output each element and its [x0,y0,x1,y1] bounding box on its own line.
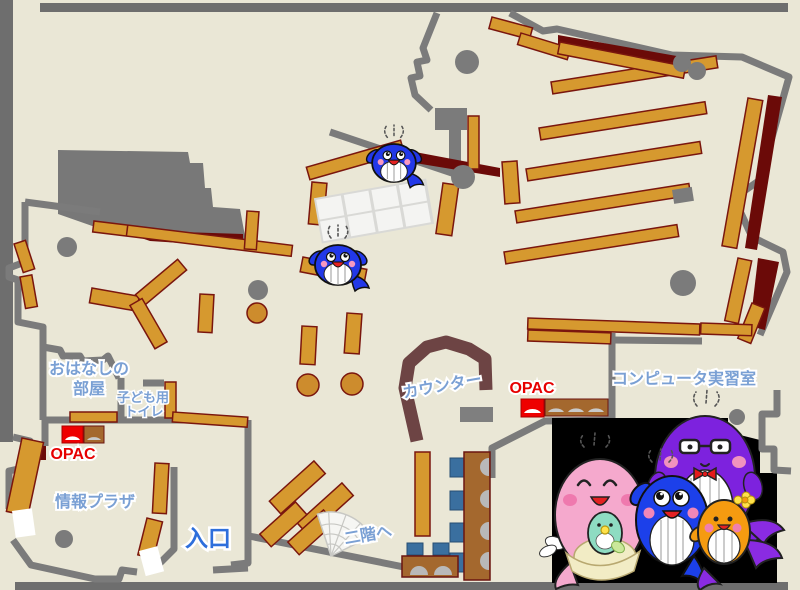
bookshelf [300,326,317,365]
chair [407,543,423,555]
label-info-plaza: 情報プラザ [55,492,135,511]
frame-left-bar [0,0,13,442]
label-kids-toilet-2: トイレ [124,404,163,419]
bookshelf [344,313,362,354]
wall [612,340,702,341]
whale-family-illustration [538,390,791,590]
opac-station-left [62,426,104,443]
bookshelf [415,452,430,536]
wall [213,568,248,570]
chair [433,543,449,555]
stool [247,303,267,323]
chair [450,523,464,542]
label-computer-room: コンピュータ実習室 [612,369,756,388]
label-opac-right: OPAC [509,380,554,397]
wall [435,108,467,130]
desk [84,426,104,443]
bookshelf [70,412,117,422]
label-kids-toilet: 子ども用 [117,390,169,405]
pillar [455,50,479,74]
bookshelf [152,463,169,514]
bookshelf [468,116,479,169]
opac-terminal-icon [62,426,83,443]
frame-top-bar [40,3,788,12]
bookshelf [701,323,752,336]
frame-bottom-bar [15,582,788,590]
label-storytelling-room-2: 部屋 [73,379,105,398]
chair [450,491,464,510]
opac-station-right [521,399,608,417]
opac-terminal-icon [521,399,544,417]
label-opac-left: OPAC [50,446,95,463]
floor-map-canvas: おはなしの 部屋 子ども用 トイレ OPAC 情報プラザ 入口 二階へ カウンタ… [0,0,800,590]
door-gap [12,508,36,538]
stool [341,373,363,395]
bookshelf [244,211,259,250]
pillar [688,62,706,80]
desk [545,399,608,416]
pillar [55,530,73,548]
bookshelf [198,294,214,333]
pillar [670,270,696,296]
pillar [248,280,268,300]
counter-desk [460,407,493,422]
label-storytelling-room: おはなしの [49,360,129,378]
library-floor-map: おはなしの 部屋 子ども用 トイレ OPAC 情報プラザ 入口 二階へ カウンタ… [0,0,800,590]
pillar [451,165,475,189]
stool [297,374,319,396]
bookshelf [502,161,520,204]
pillar [729,409,745,425]
bookshelf [528,330,611,344]
label-entrance: 入口 [185,525,231,551]
pillar [57,237,77,257]
chair [450,458,464,477]
